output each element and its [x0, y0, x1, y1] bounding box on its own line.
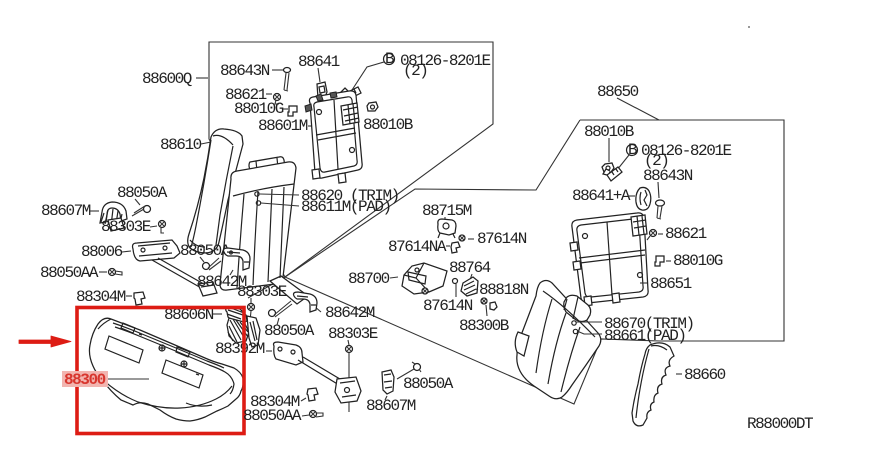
svg-text:88601M: 88601M — [258, 117, 308, 135]
svg-text:88607M: 88607M — [41, 202, 91, 220]
svg-text:88050A: 88050A — [117, 184, 168, 202]
svg-text:88643N: 88643N — [220, 62, 270, 80]
svg-text:88641+A: 88641+A — [572, 187, 631, 205]
svg-text:88610: 88610 — [160, 136, 202, 154]
svg-text:88010B: 88010B — [363, 116, 413, 134]
svg-text:88643N: 88643N — [643, 167, 693, 185]
svg-text:88715M: 88715M — [422, 202, 472, 220]
svg-text:88050A: 88050A — [264, 322, 315, 340]
svg-text:(2): (2) — [403, 62, 427, 80]
svg-text:88642M: 88642M — [325, 304, 375, 322]
svg-text:88010G: 88010G — [673, 252, 723, 270]
svg-text:R88000DT: R88000DT — [747, 415, 813, 433]
svg-text:88050AA: 88050AA — [40, 264, 99, 282]
svg-text:88607M: 88607M — [366, 397, 416, 415]
svg-text:88006: 88006 — [81, 243, 123, 261]
svg-text:88660: 88660 — [684, 366, 726, 384]
svg-text:88818N: 88818N — [479, 281, 529, 299]
svg-text:88611M(PAD): 88611M(PAD) — [301, 198, 391, 216]
svg-text:88050AA: 88050AA — [243, 407, 302, 425]
svg-text:88600Q: 88600Q — [142, 70, 192, 88]
svg-text:88621: 88621 — [665, 225, 707, 243]
svg-text:88304M: 88304M — [76, 288, 126, 306]
svg-text:87614N: 87614N — [477, 230, 527, 248]
svg-text:88651: 88651 — [650, 275, 692, 293]
svg-text:88764: 88764 — [449, 259, 491, 277]
svg-text:88392M: 88392M — [215, 340, 265, 358]
svg-text:88300B: 88300B — [459, 317, 509, 335]
svg-text:B: B — [385, 50, 394, 68]
svg-text:88010G: 88010G — [234, 100, 284, 118]
svg-text:88661(PAD): 88661(PAD) — [604, 327, 686, 345]
svg-text:88300: 88300 — [64, 371, 106, 389]
svg-text:88303E: 88303E — [237, 283, 287, 301]
svg-text:B: B — [628, 141, 637, 159]
svg-text:87614N: 87614N — [423, 297, 473, 315]
svg-text:88303E: 88303E — [101, 218, 151, 236]
svg-text:88700: 88700 — [348, 270, 390, 288]
svg-text:88641: 88641 — [298, 53, 340, 71]
svg-text:88050A: 88050A — [403, 375, 454, 393]
svg-text:88303E: 88303E — [328, 325, 378, 343]
svg-text:87614NA: 87614NA — [388, 238, 447, 256]
